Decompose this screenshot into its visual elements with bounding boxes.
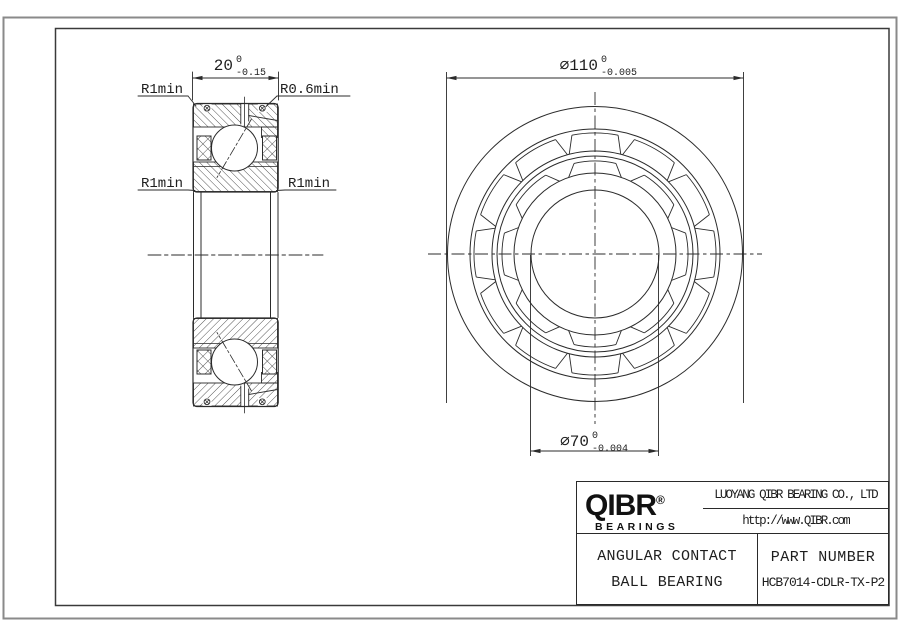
bore-dimension — [531, 255, 659, 456]
product-name-cell: ANGULAR CONTACT BALL BEARING — [577, 534, 758, 604]
arrow-left-icon — [531, 449, 541, 453]
cross-section-lower-half — [193, 318, 278, 413]
arrow-left-icon — [447, 76, 457, 80]
front-view: ⌀110 0 -0.005 ⌀70 0 -0.004 — [428, 55, 762, 456]
od-dim-value: ⌀110 — [560, 57, 598, 75]
company-logo: QIBR® BEARINGS — [577, 482, 703, 533]
width-dim-upper-tol: 0 — [236, 55, 242, 66]
product-name-line1: ANGULAR CONTACT — [597, 548, 737, 565]
bore-dim-lower-tol: -0.004 — [592, 444, 628, 455]
part-number-cell: PART NUMBER HCB7014-CDLR-TX-P2 — [758, 534, 888, 604]
cross-section-upper-half — [193, 97, 278, 192]
registered-trademark-icon: ® — [656, 493, 665, 507]
arrow-right-icon — [269, 76, 279, 80]
company-name: LUOYANG QIBR BEARING CO., LTD — [703, 482, 888, 509]
part-number-label: PART NUMBER — [771, 549, 876, 566]
title-block-detail-row: ANGULAR CONTACT BALL BEARING PART NUMBER… — [577, 533, 888, 604]
logo-text: QIBR — [585, 489, 656, 522]
logo-subtext: BEARINGS — [595, 521, 703, 533]
title-block: QIBR® BEARINGS LUOYANG QIBR BEARING CO.,… — [576, 481, 889, 605]
od-dim-upper-tol: 0 — [601, 55, 607, 66]
fillet-label-mid-left: R1min — [141, 176, 183, 192]
width-dim-lower-tol: -0.15 — [236, 68, 266, 79]
fillet-label-top-left: R1min — [141, 82, 183, 98]
width-dim-value: 20 — [214, 57, 233, 75]
arrow-left-icon — [193, 76, 203, 80]
front-view-centerlines — [428, 92, 762, 424]
arrow-right-icon — [734, 76, 744, 80]
arrow-right-icon — [649, 449, 659, 453]
od-dim-lower-tol: -0.005 — [601, 68, 637, 79]
bore-dim-value: ⌀70 — [560, 433, 589, 451]
company-info: LUOYANG QIBR BEARING CO., LTD http://www… — [703, 482, 888, 533]
product-name-line2: BALL BEARING — [611, 574, 723, 591]
title-block-header-row: QIBR® BEARINGS LUOYANG QIBR BEARING CO.,… — [577, 482, 888, 533]
fillet-label-mid-right: R1min — [288, 176, 330, 192]
bore-dim-upper-tol: 0 — [592, 431, 598, 442]
drawing-sheet: 20 0 -0.15 R1min R0.6min R1min R1min — [0, 0, 900, 636]
fillet-label-top-right: R0.6min — [280, 82, 339, 98]
part-number-value: HCB7014-CDLR-TX-P2 — [762, 575, 884, 590]
logo-wordmark: QIBR® — [585, 486, 703, 520]
company-website[interactable]: http://www.QIBR.com — [703, 509, 888, 533]
cross-section-view: 20 0 -0.15 R1min R0.6min R1min R1min — [138, 55, 350, 413]
